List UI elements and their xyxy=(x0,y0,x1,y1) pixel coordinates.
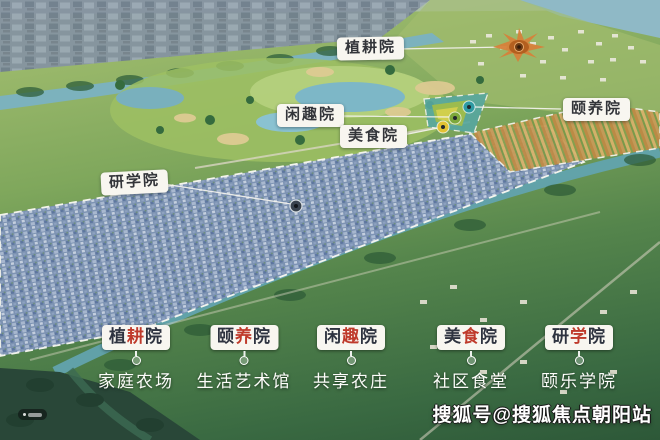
legend-title: 研学院 xyxy=(545,325,613,350)
callout-xianqu-yuan: 闲趣院 xyxy=(277,104,344,127)
callout-yiyang-yuan: 颐养院 xyxy=(563,98,630,121)
legend-char: 院 xyxy=(588,327,606,346)
legend-connector-dot xyxy=(575,356,584,365)
legend-char: 院 xyxy=(360,327,378,346)
legend-item-meishi: 美食院 社区食堂 xyxy=(433,325,509,392)
green-dot-marker xyxy=(449,112,461,124)
legend-char: 颐 xyxy=(217,327,235,346)
legend-char: 美 xyxy=(444,327,462,346)
legend-title: 闲趣院 xyxy=(317,325,385,350)
legend-item-yanxue: 研学院 颐乐学院 xyxy=(541,325,617,392)
legend-connector-dot xyxy=(467,356,476,365)
legend-title: 颐养院 xyxy=(210,325,278,350)
badge-dot-icon xyxy=(23,413,26,416)
aerial-masterplan-image: 植耕院 闲趣院 美食院 颐养院 研学院 植耕院 家庭农场 颐养院 生活艺术馆 闲… xyxy=(0,0,660,440)
industrial-district xyxy=(0,0,430,72)
legend-title: 植耕院 xyxy=(102,325,170,350)
legend-char-accent: 学 xyxy=(570,327,588,346)
dark-dot-marker xyxy=(290,200,302,212)
legend-subtitle: 共享农庄 xyxy=(313,372,389,392)
legend-subtitle: 颐乐学院 xyxy=(541,372,617,392)
legend-char-accent: 趣 xyxy=(342,327,360,346)
legend-connector-line xyxy=(243,351,245,356)
legend-connector-dot xyxy=(240,356,249,365)
legend-char: 研 xyxy=(552,327,570,346)
legend-char: 院 xyxy=(145,327,163,346)
legend-char: 院 xyxy=(480,327,498,346)
legend-connector-dot xyxy=(132,356,141,365)
legend-connector-line xyxy=(470,351,472,356)
legend-char-accent: 耕 xyxy=(127,327,145,346)
legend-item-zhigeng: 植耕院 家庭农场 xyxy=(98,325,174,392)
legend-connector-line xyxy=(578,351,580,356)
legend-connector-line xyxy=(350,351,352,356)
teal-dot-marker xyxy=(463,101,475,113)
watermark: 搜狐号@搜狐焦点朝阳站 xyxy=(432,405,652,427)
legend-char-accent: 养 xyxy=(235,327,253,346)
legend-connector-dot xyxy=(347,356,356,365)
corner-badge xyxy=(18,409,47,420)
badge-text-blob xyxy=(28,413,42,417)
yellow-dot-marker xyxy=(437,121,449,133)
legend-subtitle: 生活艺术馆 xyxy=(197,372,292,392)
legend-char-accent: 食 xyxy=(462,327,480,346)
callout-zhigeng-yuan: 植耕院 xyxy=(337,36,404,60)
legend-item-yiyang: 颐养院 生活艺术馆 xyxy=(197,325,292,392)
legend-subtitle: 社区食堂 xyxy=(433,372,509,392)
legend-char: 闲 xyxy=(324,327,342,346)
legend-char: 院 xyxy=(253,327,271,346)
callout-meishi-yuan: 美食院 xyxy=(340,125,407,148)
legend-connector-line xyxy=(135,351,137,356)
legend-char: 植 xyxy=(109,327,127,346)
callout-yanxue-yuan: 研学院 xyxy=(100,169,168,195)
legend-item-xianqu: 闲趣院 共享农庄 xyxy=(313,325,389,392)
legend-title: 美食院 xyxy=(437,325,505,350)
legend-subtitle: 家庭农场 xyxy=(98,372,174,392)
